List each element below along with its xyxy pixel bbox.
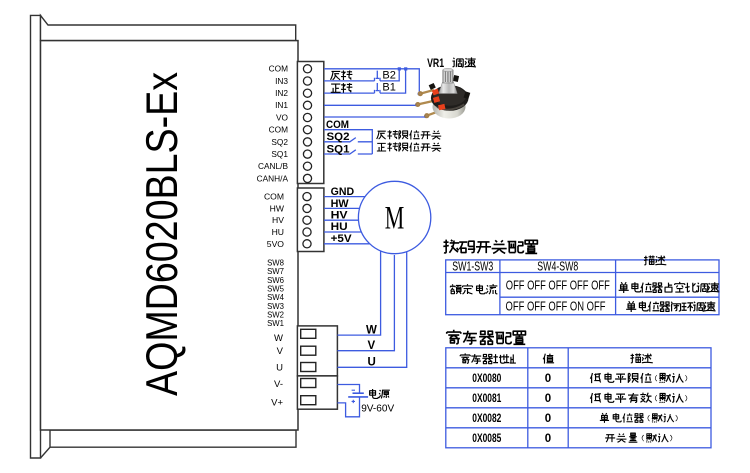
svg-text:9V-60V: 9V-60V [361,402,394,414]
svg-text:B2: B2 [382,70,396,82]
svg-text:SQ1: SQ1 [271,149,288,159]
svg-text:W: W [274,333,283,344]
svg-text:COM: COM [269,64,288,74]
svg-text:M: M [385,200,405,236]
svg-text:0: 0 [545,373,551,385]
svg-text:SW6: SW6 [267,276,284,285]
svg-text:U: U [276,363,283,374]
svg-text:0: 0 [545,393,551,405]
svg-text:VR1: VR1 [427,58,444,70]
svg-text:V: V [368,340,376,352]
svg-text:AQMD6020BLS-Ex: AQMD6020BLS-Ex [138,72,187,396]
svg-text:V: V [277,346,284,357]
svg-text:IN3: IN3 [275,76,288,86]
svg-text:V+: V+ [271,397,283,408]
svg-text:COM: COM [264,192,284,202]
svg-text:0X0080: 0X0080 [472,373,501,385]
svg-text:SQ1: SQ1 [327,143,350,155]
svg-text:U: U [368,357,376,369]
svg-text:+5V: +5V [331,233,353,245]
svg-text:HV: HV [272,215,284,225]
svg-text:V-: V- [274,379,283,390]
svg-text:CANL/B: CANL/B [258,161,288,171]
svg-text:COM: COM [269,125,288,135]
svg-text:IN1: IN1 [275,100,288,110]
svg-text:SQ2: SQ2 [271,137,288,147]
svg-text:SW4-SW8: SW4-SW8 [537,259,578,274]
svg-text:VO: VO [276,112,289,122]
svg-text:5VO: 5VO [267,239,285,249]
svg-text:HW: HW [270,203,285,213]
svg-text:SW3: SW3 [267,302,284,311]
svg-text:HU: HU [331,221,348,233]
svg-text:W: W [366,324,377,336]
svg-text:SW1: SW1 [267,319,284,328]
svg-text:SW7: SW7 [267,267,284,276]
svg-text:IN2: IN2 [275,88,288,98]
svg-text:CANH/A: CANH/A [257,173,289,183]
svg-text:COM: COM [326,119,349,131]
svg-text:B1: B1 [382,82,396,94]
svg-text:0X0081: 0X0081 [472,393,501,405]
svg-text:SW2: SW2 [267,311,284,320]
svg-text:GND: GND [331,186,355,198]
svg-text:0: 0 [545,433,551,445]
svg-text:SW1-SW3: SW1-SW3 [452,259,493,274]
svg-text:OFF OFF OFF ON OFF: OFF OFF OFF ON OFF [506,299,606,313]
svg-text:SW5: SW5 [267,285,285,294]
svg-text:HU: HU [272,227,284,237]
svg-text:HW: HW [331,198,350,210]
svg-text:SQ2: SQ2 [327,131,350,143]
svg-text:0X0085: 0X0085 [472,433,501,445]
svg-text:HV: HV [331,209,349,221]
svg-text:0: 0 [545,413,551,425]
svg-text:SW8: SW8 [267,258,284,267]
svg-text:OFF OFF OFF OFF OFF: OFF OFF OFF OFF OFF [506,278,610,292]
svg-text:0X0082: 0X0082 [472,413,501,425]
